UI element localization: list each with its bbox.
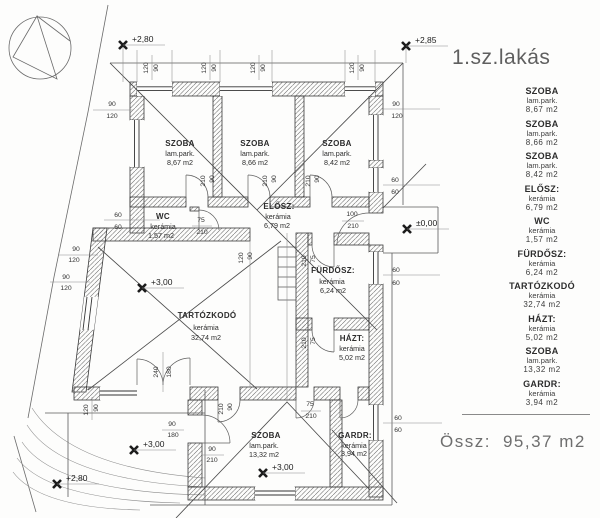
room-name: SZOBA [322, 139, 352, 148]
elevation-label: ±0,00 [416, 218, 437, 228]
dimension-label: 90 [62, 274, 70, 281]
door-size-label: 210 [301, 255, 308, 267]
door-size-label: 90 [227, 403, 234, 411]
legend-room-material: lam.park. [486, 356, 598, 365]
dimension-label: 60 [391, 189, 399, 196]
total-label: Össz: [440, 432, 491, 452]
legend-room-name: TARTÓZKODÓ [486, 281, 598, 291]
legend-room-material: lam.park. [486, 96, 598, 105]
room-area: 8,66 m2 [242, 158, 268, 167]
window [137, 82, 172, 96]
elevation-label: +2,80 [66, 473, 88, 483]
legend-item: SZOBA lam.park. 8,67 m2 [486, 86, 598, 115]
door-size-label: 100 [346, 211, 358, 218]
door-size-label: 210 [347, 223, 359, 230]
dimension-label: 90 [93, 404, 100, 412]
room-name: SZOBA [165, 139, 195, 148]
door-size-label: 210 [301, 337, 308, 349]
legend-list: SZOBA lam.park. 8,67 m2 SZOBA lam.park. … [486, 86, 598, 407]
dimension-label: 60 [391, 177, 399, 184]
legend-item: SZOBA lam.park. 8,66 m2 [486, 119, 598, 148]
door-size-label: 240 [153, 366, 160, 378]
legend-room-name: ELŐSZ: [486, 184, 598, 194]
legend-room-area: 8,66 m2 [486, 138, 598, 148]
legend-room-name: SZOBA [486, 346, 598, 356]
legend-room-material: kerámia [486, 389, 598, 398]
dimension-label: 90 [247, 252, 254, 260]
legend-room-area: 32,74 m2 [486, 300, 598, 310]
dimension-label: 120 [143, 62, 150, 74]
legend-item: SZOBA lam.park. 8,42 m2 [486, 151, 598, 180]
legend-room-area: 13,32 m2 [486, 365, 598, 375]
room-area: 1,57 m2 [148, 231, 174, 240]
door-size-label: 210 [305, 175, 312, 187]
door-size-label: 210 [305, 413, 317, 420]
door-size-label: 75 [197, 217, 205, 224]
legend-room-area: 6,79 m2 [486, 203, 598, 213]
legend-room-material: kerámia [486, 291, 598, 300]
door-swing [340, 400, 358, 418]
dimension-label: 90 [359, 64, 366, 72]
room-name: FÜRDŐSZ: [311, 266, 355, 275]
double-door-swing [137, 352, 190, 392]
legend-item: FÜRDŐSZ: kerámia 6,24 m2 [486, 249, 598, 278]
room-material: kerámia [150, 222, 176, 231]
room-name: SZOBA [240, 139, 270, 148]
door-size-label: 90 [314, 175, 321, 183]
room-name: HÁZT: [340, 334, 365, 343]
window [345, 82, 375, 96]
dimension-label: 60 [114, 212, 122, 219]
legend-item: SZOBA lam.park. 13,32 m2 [486, 346, 598, 375]
dimension-label: 120 [68, 257, 80, 264]
dimension-label: 90 [260, 64, 267, 72]
window [100, 387, 137, 400]
room-material: lam.park. [165, 149, 195, 158]
dimension-label: 180 [167, 432, 179, 439]
total-value: 95,37 m2 [503, 432, 586, 452]
legend-room-name: GARDR: [486, 379, 598, 389]
legend-room-area: 8,67 m2 [486, 105, 598, 115]
drawing-canvas: +2,80+2,85±0,00+3,00+3,00+3,00+2,80 SZOB… [0, 0, 600, 518]
legend-item: GARDR: kerámia 3,94 m2 [486, 379, 598, 408]
legend-room-name: SZOBA [486, 151, 598, 161]
plot-boundary-line [28, 5, 108, 418]
dimension-label: 90 [72, 246, 80, 253]
room-material: kerámia [339, 344, 365, 353]
legend-room-material: lam.park. [486, 129, 598, 138]
door-size-label: 90 [209, 175, 216, 183]
window [369, 115, 383, 160]
legend-room-area: 8,42 m2 [486, 170, 598, 180]
room-name: GARDR: [338, 431, 372, 440]
legend-room-area: 1,57 m2 [486, 235, 598, 245]
room-area: 8,42 m2 [324, 158, 350, 167]
room-name: TARTÓZKODÓ [178, 311, 237, 320]
north-arrow-icon [9, 16, 71, 79]
door-size-label: 210 [262, 175, 269, 187]
elevation-label: +2,80 [132, 34, 154, 44]
legend-divider [462, 414, 590, 415]
legend-room-material: kerámia [486, 194, 598, 203]
dimension-label: 120 [238, 252, 245, 264]
legend-room-name: SZOBA [486, 119, 598, 129]
door-size-label: 180 [166, 366, 173, 378]
window [369, 168, 383, 192]
room-material: kerámia [319, 277, 345, 286]
legend-item: ELŐSZ: kerámia 6,79 m2 [486, 184, 598, 213]
window [220, 82, 272, 96]
door-size-label: 75 [306, 401, 314, 408]
dimension-label: 120 [60, 285, 72, 292]
elevation-label: +3,00 [272, 462, 294, 472]
elevation-label: +2,85 [415, 35, 437, 45]
window [80, 297, 98, 330]
room-name: SZOBA [251, 431, 281, 440]
room-material: lam.park. [249, 441, 279, 450]
window [130, 120, 144, 167]
dimension-label: 60 [394, 427, 402, 434]
room-material: kerámia [193, 323, 219, 332]
legend-room-area: 5,02 m2 [486, 333, 598, 343]
room-name: ELŐSZ: [263, 202, 294, 211]
plan-labels: SZOBAlam.park.8,67 m2SZOBAlam.park.8,66 … [60, 62, 403, 464]
dimension-label: 90 [168, 421, 176, 428]
legend-room-material: kerámia [486, 259, 598, 268]
legend-room-name: SZOBA [486, 86, 598, 96]
room-material: kerámia [265, 212, 291, 221]
plot-boundary-line [14, 436, 36, 512]
door-size-label: 210 [200, 175, 207, 187]
door-size-label: 90 [271, 175, 278, 183]
dimension-label: 120 [106, 113, 118, 120]
legend-room-material: kerámia [486, 324, 598, 333]
dimension-label: 90 [211, 64, 218, 72]
dimension-label: 90 [208, 446, 216, 453]
legend-item: HÁZT: kerámia 5,02 m2 [486, 314, 598, 343]
room-area: 8,67 m2 [167, 158, 193, 167]
room-area: 6,24 m2 [320, 286, 346, 295]
room-material: lam.park. [322, 149, 352, 158]
legend-room-area: 6,24 m2 [486, 268, 598, 278]
dimension-label: 120 [83, 404, 90, 416]
dimension-label: 60 [114, 224, 122, 231]
legend-room-name: HÁZT: [486, 314, 598, 324]
dimension-label: 120 [391, 113, 403, 120]
legend-room-name: FÜRDŐSZ: [486, 249, 598, 259]
legend-item: WC kerámia 1,57 m2 [486, 216, 598, 245]
dimension-label: 210 [206, 457, 218, 464]
elevation-label: +3,00 [143, 439, 165, 449]
door-swing [202, 415, 230, 443]
door-size-label: 210 [196, 229, 208, 236]
dimension-label: 90 [392, 101, 400, 108]
room-area: 6,79 m2 [264, 221, 290, 230]
total-area: Össz: 95,37 m2 [440, 432, 600, 452]
room-area: 13,32 m2 [249, 450, 279, 459]
dimension-label: 120 [349, 62, 356, 74]
dimension-label: 60 [392, 267, 400, 274]
window [255, 487, 295, 500]
door-size-label: 75 [310, 255, 317, 263]
room-area: 5,02 m2 [339, 353, 365, 362]
dimension-label: 90 [108, 101, 116, 108]
window [369, 252, 383, 284]
apartment-title: 1.sz.lakás [440, 46, 600, 70]
dimension-label: 120 [250, 62, 257, 74]
dimension-label: 60 [394, 415, 402, 422]
dimension-label: 120 [201, 62, 208, 74]
legend-item: TARTÓZKODÓ kerámia 32,74 m2 [486, 281, 598, 310]
room-material: lam.park. [240, 149, 270, 158]
door-size-label: 210 [218, 403, 225, 415]
room-name: WC [156, 212, 170, 221]
elevation-label: +3,00 [151, 277, 173, 287]
dimension-label: 90 [153, 64, 160, 72]
legend-room-material: lam.park. [486, 161, 598, 170]
room-area: 3,94 m2 [341, 449, 367, 458]
room-area: 32,74 m2 [191, 333, 221, 342]
door-size-label: 75 [310, 337, 317, 345]
legend-room-area: 3,94 m2 [486, 398, 598, 408]
dimension-label: 60 [392, 280, 400, 287]
legend-panel: 1.sz.lakás SZOBA lam.park. 8,67 m2 SZOBA… [440, 46, 600, 452]
legend-room-material: kerámia [486, 226, 598, 235]
terrain-contours [13, 408, 205, 510]
legend-room-name: WC [486, 216, 598, 226]
